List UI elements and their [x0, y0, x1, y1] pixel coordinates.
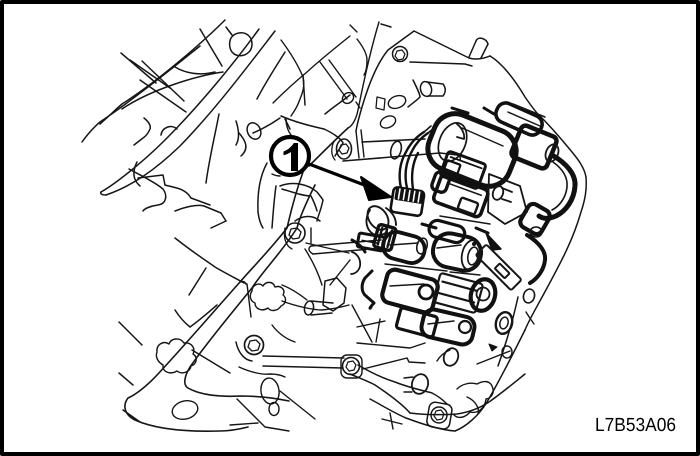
svg-text:L7B53A06: L7B53A06 — [595, 415, 676, 436]
